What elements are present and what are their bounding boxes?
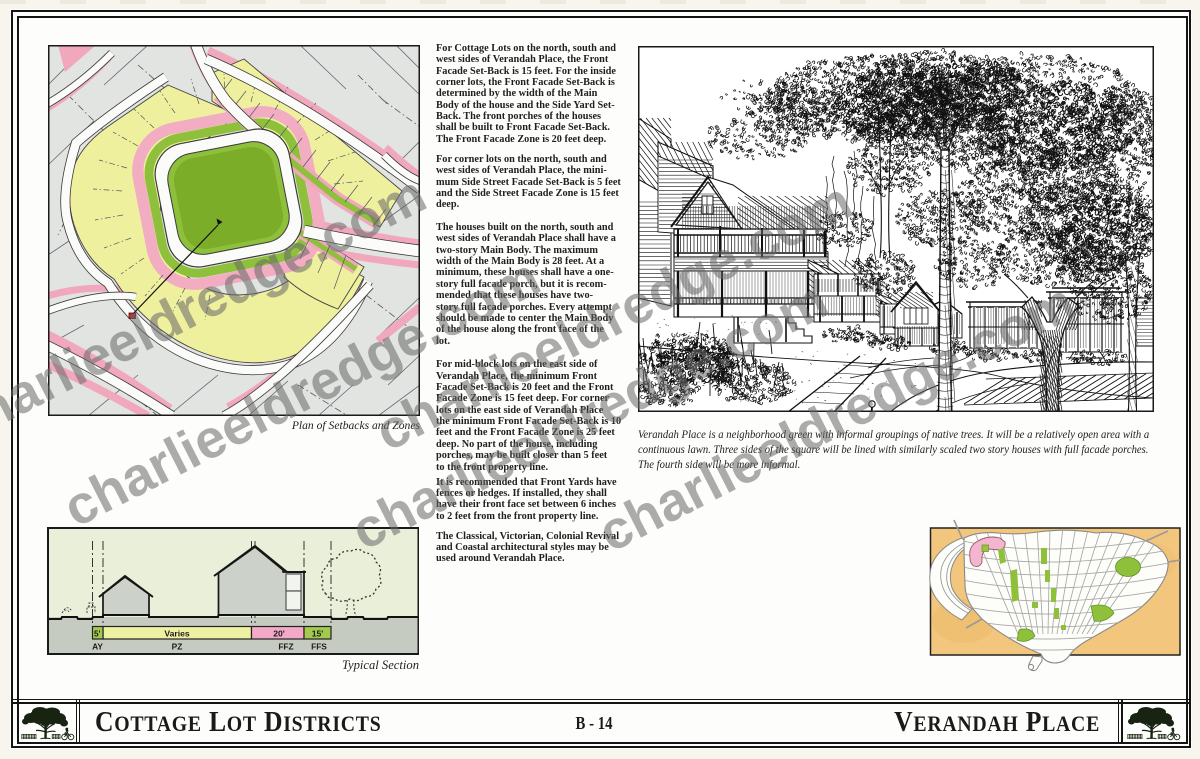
- svg-text:20': 20': [273, 629, 285, 639]
- svg-text:Varies: Varies: [164, 629, 190, 639]
- svg-text:AY: AY: [92, 642, 103, 652]
- svg-text:FFZ: FFZ: [278, 642, 293, 652]
- svg-text:5': 5': [94, 630, 101, 639]
- svg-text:PZ: PZ: [171, 642, 182, 652]
- svg-text:15': 15': [311, 629, 323, 639]
- svg-text:FFS: FFS: [311, 642, 327, 652]
